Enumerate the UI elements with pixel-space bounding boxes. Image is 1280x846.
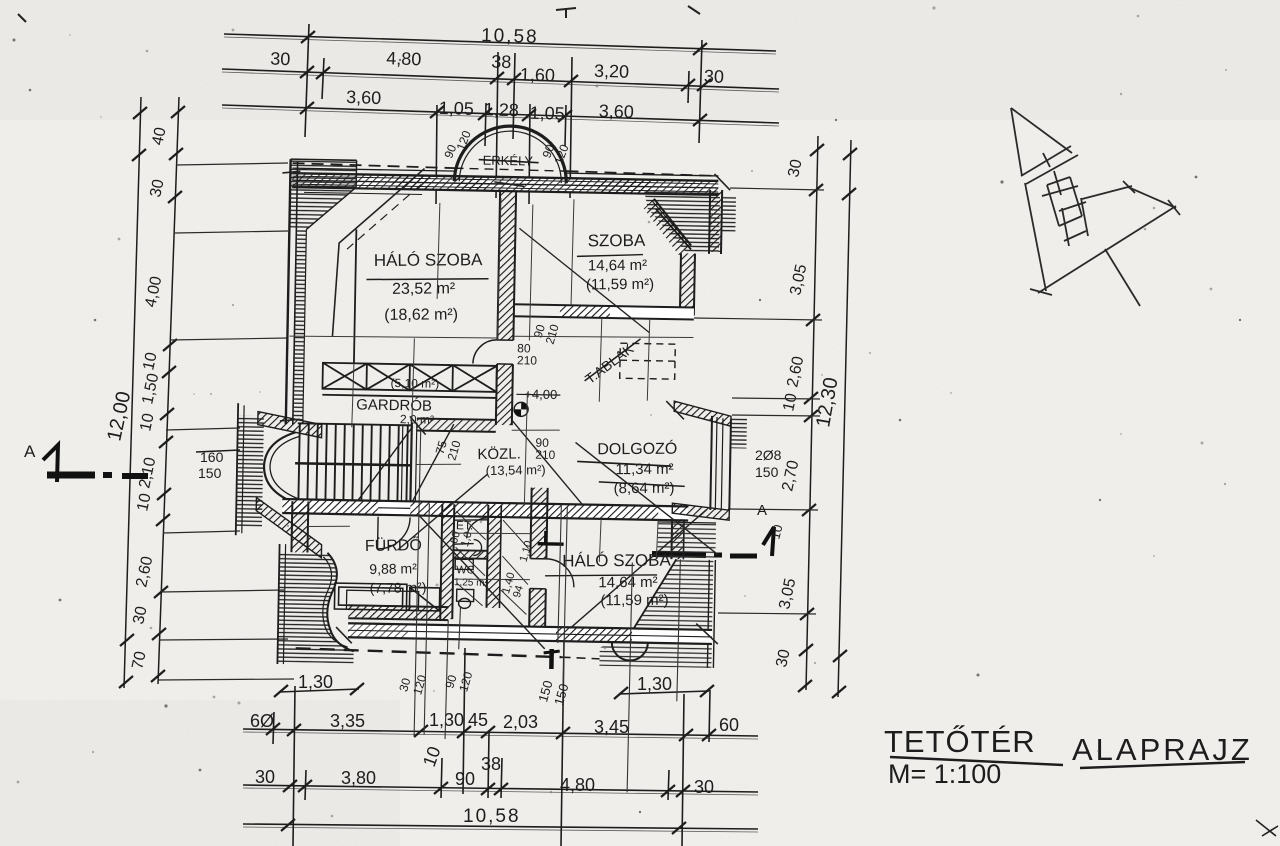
- svg-text:30: 30: [785, 158, 805, 179]
- svg-text:1,05: 1,05: [529, 103, 565, 124]
- svg-text:A: A: [757, 502, 767, 519]
- svg-text:M= 1:100: M= 1:100: [888, 759, 1001, 789]
- svg-text:2Ø8: 2Ø8: [755, 447, 782, 463]
- svg-text:4,80: 4,80: [560, 775, 595, 795]
- svg-text:30: 30: [270, 49, 291, 70]
- svg-text:SZOBA: SZOBA: [588, 231, 646, 250]
- svg-text:3,60: 3,60: [598, 101, 634, 122]
- svg-text:3,35: 3,35: [330, 711, 365, 731]
- svg-text:HÁLÓ SZOBA: HÁLÓ SZOBA: [374, 250, 483, 270]
- svg-text:30: 30: [255, 767, 275, 787]
- svg-text:TETŐTÉR: TETŐTÉR: [884, 724, 1036, 759]
- svg-text:(5,10 m²): (5,10 m²): [390, 376, 439, 391]
- svg-text:38: 38: [491, 51, 512, 72]
- svg-text:1,30: 1,30: [298, 672, 333, 692]
- svg-text:70: 70: [129, 650, 149, 671]
- svg-text:3,80: 3,80: [341, 768, 376, 788]
- svg-text:6Ø: 6Ø: [250, 711, 274, 731]
- svg-text:150: 150: [198, 465, 222, 481]
- svg-text:30: 30: [130, 605, 150, 626]
- svg-text:DOLGOZÓ: DOLGOZÓ: [597, 439, 677, 459]
- svg-text:(13,54 m²): (13,54 m²): [486, 462, 546, 478]
- svg-text:40: 40: [149, 126, 169, 147]
- svg-text:30: 30: [773, 648, 793, 669]
- svg-text:2,03: 2,03: [503, 712, 538, 732]
- svg-text:60: 60: [719, 715, 739, 735]
- svg-text:10: 10: [780, 392, 800, 413]
- svg-text:14,64 m²: 14,64 m²: [598, 574, 657, 591]
- svg-text:KÖZL.: KÖZL.: [477, 444, 521, 463]
- svg-text:1,60: 1,60: [520, 64, 556, 85]
- svg-text:(18,62 m²): (18,62 m²): [384, 306, 458, 324]
- svg-text:10: 10: [134, 492, 154, 513]
- svg-text:3,45: 3,45: [594, 717, 629, 737]
- svg-text:(8,64 m²): (8,64 m²): [614, 480, 675, 497]
- svg-text:WC: WC: [456, 564, 475, 576]
- svg-text:30: 30: [694, 777, 714, 797]
- svg-text:3,20: 3,20: [594, 61, 630, 82]
- svg-text:10,58: 10,58: [481, 25, 539, 48]
- svg-text:3,60: 3,60: [346, 87, 382, 108]
- svg-text:10: 10: [137, 412, 157, 433]
- svg-text:1,05: 1,05: [439, 98, 475, 119]
- svg-text:90: 90: [455, 769, 475, 789]
- svg-text:30: 30: [147, 178, 167, 199]
- svg-text:FÜRDŐ: FÜRDŐ: [365, 535, 422, 555]
- svg-text:1,30: 1,30: [637, 674, 672, 694]
- svg-text:23,52 m²: 23,52 m²: [392, 280, 456, 298]
- svg-text:30: 30: [704, 66, 725, 87]
- svg-text:38: 38: [481, 754, 501, 774]
- svg-text:9,88 m²: 9,88 m²: [369, 560, 417, 577]
- svg-text:(11,59 m²): (11,59 m²): [600, 592, 668, 610]
- svg-text:10: 10: [140, 351, 160, 372]
- svg-text:210: 210: [517, 353, 538, 367]
- svg-text:45: 45: [468, 710, 488, 730]
- svg-text:1,30: 1,30: [429, 710, 464, 730]
- svg-text:4,80: 4,80: [386, 48, 422, 69]
- svg-text:1,28: 1,28: [483, 99, 519, 120]
- svg-text:A: A: [24, 442, 36, 461]
- svg-text:14,64 m²: 14,64 m²: [588, 257, 647, 274]
- svg-text:150: 150: [755, 464, 779, 480]
- svg-text:10,58: 10,58: [463, 806, 521, 827]
